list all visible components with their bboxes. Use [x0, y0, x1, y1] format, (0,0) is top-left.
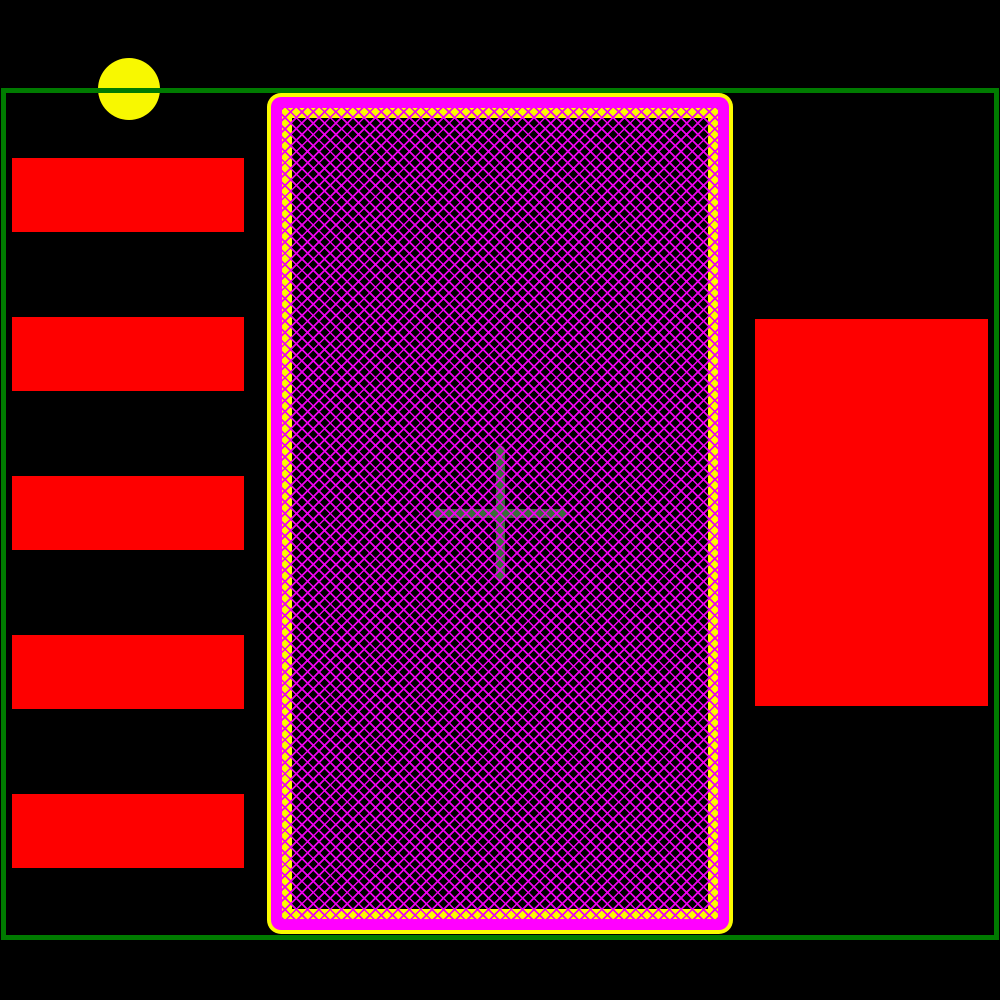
pcb-canvas — [0, 0, 1000, 1000]
courtyard-outline[interactable] — [1, 88, 999, 940]
